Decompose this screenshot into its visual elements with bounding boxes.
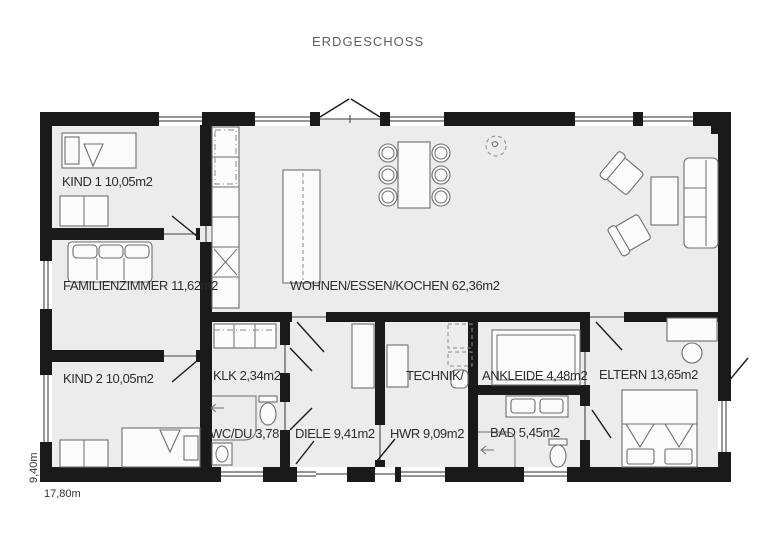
room-label-eltern: ELTERN 13,65m2 bbox=[599, 367, 698, 382]
room-label-bad: BAD 5,45m2 bbox=[490, 425, 560, 440]
furniture-familienzimmer bbox=[68, 242, 152, 282]
dimension-height: 9,40m bbox=[28, 452, 40, 483]
page-title: ERDGESCHOSS bbox=[312, 34, 424, 49]
room-label-technik: TECHNIK/ bbox=[406, 368, 464, 383]
room-label-familienzimmer: FAMILIENZIMMER 11,62m2 bbox=[63, 278, 218, 293]
floor-plan-erdgeschoss: ERDGESCHOSS KIND 1 10,05m2 FAMILIENZIMME… bbox=[0, 0, 768, 542]
room-label-klk: KLK 2,34m2 bbox=[213, 368, 281, 383]
room-label-ankleide: ANKLEIDE 4,48m2 bbox=[482, 368, 587, 383]
furniture-klk bbox=[214, 324, 276, 348]
room-label-hwr: HWR 9,09m2 bbox=[390, 426, 464, 441]
dimension-width: 17,80m bbox=[44, 488, 81, 500]
floor-plan-page: ERDGESCHOSS KIND 1 10,05m2 FAMILIENZIMME… bbox=[0, 0, 768, 542]
room-label-kind2: KIND 2 10,05m2 bbox=[63, 371, 154, 386]
room-label-diele: DIELE 9,41m2 bbox=[295, 426, 375, 441]
room-label-kind1: KIND 1 10,05m2 bbox=[62, 174, 153, 189]
room-label-wcdu: WC/DU 3,78 bbox=[210, 426, 279, 441]
room-label-wohnen: WOHNEN/ESSEN/KOCHEN 62,36m2 bbox=[290, 278, 500, 293]
